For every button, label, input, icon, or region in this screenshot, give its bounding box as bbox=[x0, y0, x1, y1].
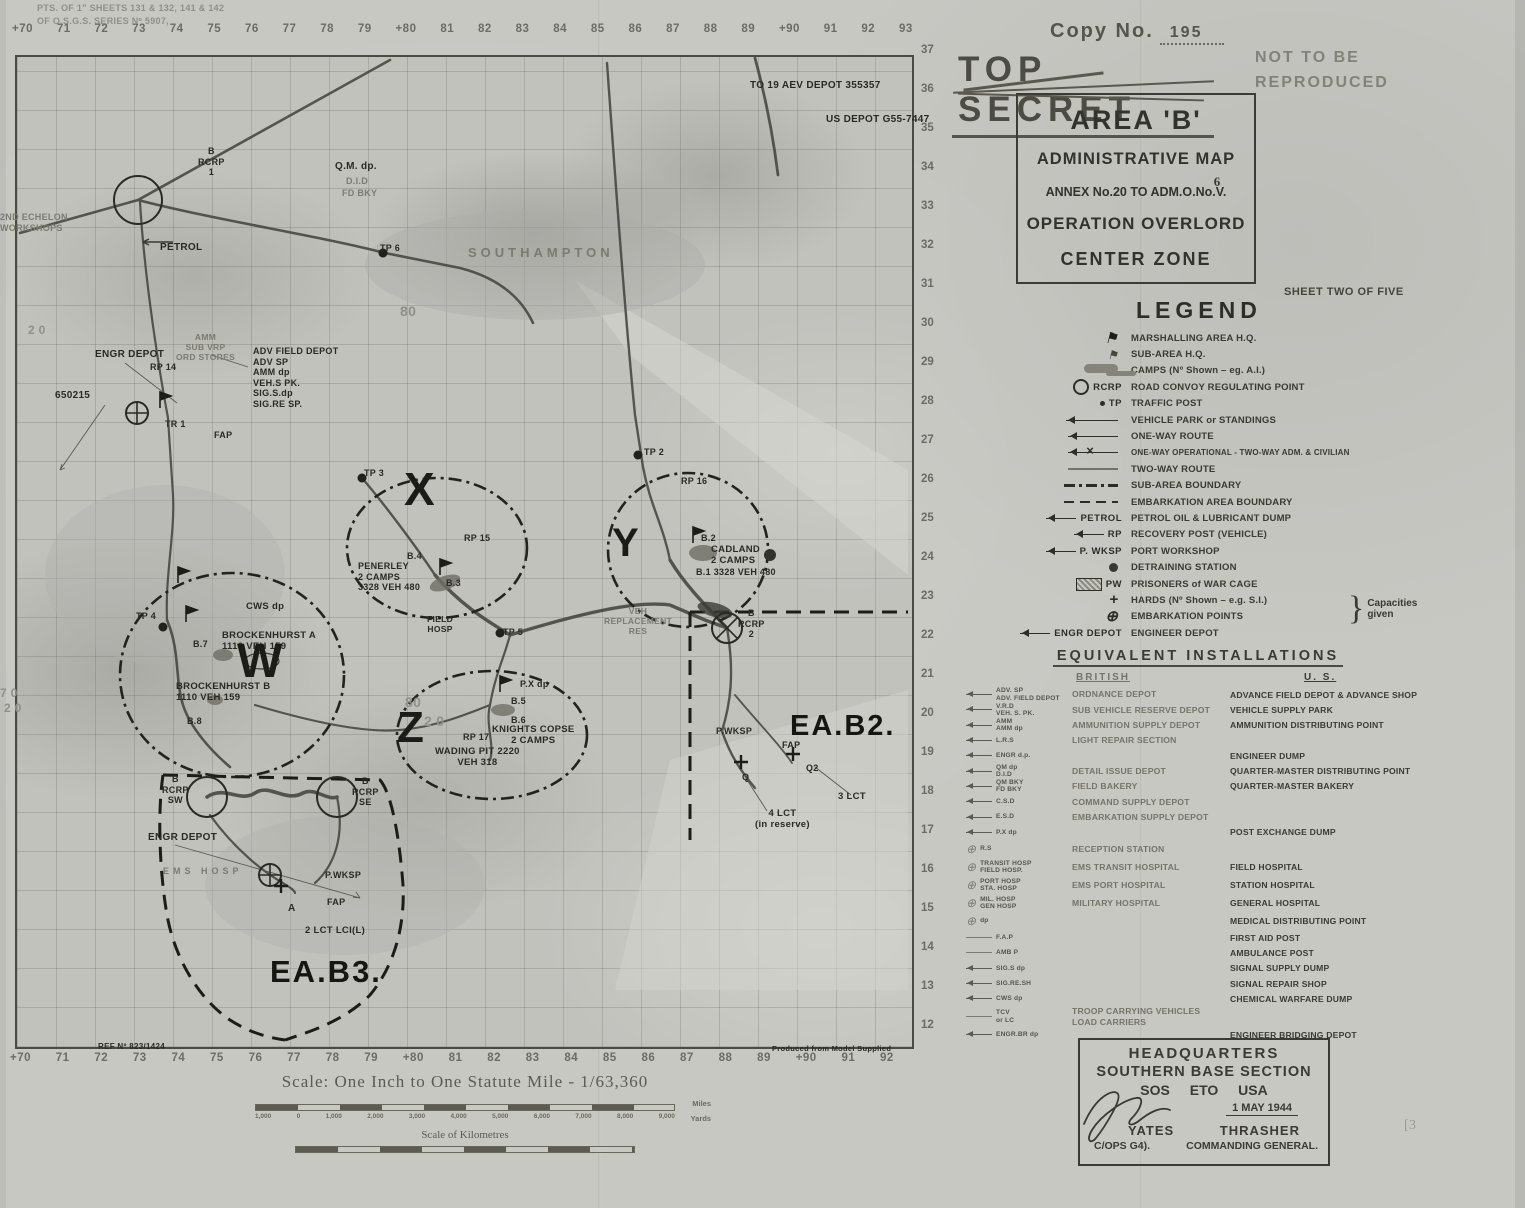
legend-symbol-icon bbox=[1100, 401, 1105, 406]
legend-item: ONE-WAY ROUTE bbox=[1018, 428, 1448, 444]
legend-symbol-icon bbox=[1107, 346, 1118, 364]
tp3-dot bbox=[358, 474, 367, 483]
equivalents-symbol: TRANSIT HOSP FIELD HOSP. bbox=[958, 858, 1072, 876]
legend-symbol-icon bbox=[1020, 633, 1050, 634]
miles-label: Miles bbox=[692, 1099, 711, 1108]
british-installation: LIGHT REPAIR SECTION bbox=[1072, 735, 1230, 745]
hq-left-name: YATES bbox=[1128, 1123, 1174, 1138]
grid-number: +80 bbox=[395, 23, 416, 35]
grid-number: 0 bbox=[297, 1113, 301, 1120]
equivalents-symbol: L.R.S bbox=[958, 737, 1072, 744]
grid-number: 23 bbox=[921, 590, 934, 602]
scale-bar bbox=[295, 1146, 635, 1153]
grid-number: 86 bbox=[641, 1052, 655, 1064]
copy-number-label: Copy No. bbox=[1050, 20, 1154, 42]
us-installation: ADVANCE FIELD DEPOT & ADVANCE SHOP bbox=[1230, 690, 1417, 700]
legend-symbol bbox=[1018, 436, 1131, 437]
equivalents-row: R.S RECEPTION STATION bbox=[958, 840, 1438, 858]
legend-symbol-icon bbox=[1084, 364, 1118, 373]
hq-right-role: COMMANDING GENERAL. bbox=[1186, 1140, 1318, 1152]
grid-number: 79 bbox=[358, 23, 372, 35]
equivalents-symbol-icon bbox=[966, 755, 992, 756]
grid-number: 92 bbox=[880, 1052, 894, 1064]
legend-item-label: PRISONERS of WAR CAGE bbox=[1131, 579, 1258, 590]
legend-symbol-abbr: RCRP bbox=[1093, 382, 1122, 393]
grid-number: 74 bbox=[170, 23, 184, 35]
british-installation: RECEPTION STATION bbox=[1072, 844, 1230, 854]
grid-number: 3,000 bbox=[409, 1113, 425, 1120]
grid-number: 82 bbox=[478, 23, 492, 35]
equivalents-symbol-abbr: SIG.RE.SH bbox=[996, 980, 1031, 987]
equivalents-row: PORT HOSP STA. HOSP EMS PORT HOSPITAL ST… bbox=[958, 876, 1438, 894]
british-installation: ORDNANCE DEPOT bbox=[1072, 689, 1230, 699]
equivalents-symbol-abbr: P.X dp bbox=[996, 829, 1017, 836]
legend-symbol bbox=[1018, 501, 1131, 504]
equivalents-symbol: P.X dp bbox=[958, 829, 1072, 836]
grid-number: 20 bbox=[921, 707, 934, 719]
camp-blobs bbox=[207, 545, 734, 716]
flag-icon bbox=[693, 527, 704, 543]
equivalents-symbol-icon bbox=[966, 937, 992, 938]
us-installation: FIELD HOSPITAL bbox=[1230, 862, 1303, 872]
equivalents-symbol-icon bbox=[966, 840, 976, 858]
equivalents-symbol: C.S.D bbox=[958, 798, 1072, 805]
equivalents-row: SIG.S dp SIGNAL SUPPLY DUMP bbox=[958, 961, 1438, 976]
equivalents-row: C.S.D COMMAND SUPPLY DEPOT bbox=[958, 794, 1438, 809]
british-installation: EMS PORT HOSPITAL bbox=[1072, 880, 1230, 890]
legend-item: SUB-AREA BOUNDARY bbox=[1018, 478, 1448, 494]
us-installation: MEDICAL DISTRIBUTING POINT bbox=[1230, 916, 1366, 926]
legend-symbol bbox=[1018, 484, 1131, 487]
legend-item-label: VEHICLE PARK or STANDINGS bbox=[1131, 415, 1276, 426]
equivalents-symbol-icon bbox=[966, 771, 992, 772]
hq-line-1: HEADQUARTERS bbox=[1080, 1045, 1328, 1062]
legend-symbol-abbr: ENGR DEPOT bbox=[1054, 628, 1122, 639]
equivalents-symbol: AMB P bbox=[958, 949, 1072, 956]
zone-title: CENTER ZONE bbox=[1022, 249, 1250, 270]
legend-symbol-icon bbox=[1046, 518, 1076, 519]
legend-item-label: HARDS (Nº Shown – e.g. S.I.) bbox=[1131, 595, 1267, 606]
grid-number: 89 bbox=[757, 1052, 771, 1064]
equivalents-symbol: V.R.D VEH. S. PK. bbox=[958, 703, 1072, 718]
us-installation: SIGNAL SUPPLY DUMP bbox=[1230, 963, 1329, 973]
flag-icon bbox=[500, 676, 511, 692]
legend-item: DETRAINING STATION bbox=[1018, 559, 1448, 575]
zone-y-boundary bbox=[608, 473, 768, 627]
legend-item-label: TWO-WAY ROUTE bbox=[1131, 464, 1215, 475]
legend-symbol-icon bbox=[1076, 578, 1102, 591]
legend-symbol bbox=[1018, 452, 1131, 453]
legend-item: ONE-WAY OPERATIONAL - TWO-WAY ADM. & CIV… bbox=[1018, 445, 1448, 461]
equivalents-row: ADV. SP ADV. FIELD DEPOT ORDNANCE DEPOT … bbox=[958, 687, 1438, 702]
equivalents-symbol-abbr: PORT HOSP STA. HOSP bbox=[980, 878, 1021, 893]
legend-symbol: PETROL bbox=[1018, 513, 1131, 524]
grid-number: 13 bbox=[921, 980, 934, 992]
legend-symbol-abbr: TP bbox=[1109, 398, 1122, 409]
equivalents-symbol-abbr: SIG.S dp bbox=[996, 965, 1025, 972]
british-installation: EMS TRANSIT HOSPITAL bbox=[1072, 862, 1230, 872]
equivalents-row: ENGR d.p. ENGINEER DUMP bbox=[958, 748, 1438, 763]
equivalents-symbol: E.S.D bbox=[958, 813, 1072, 820]
map-title-box: AREA 'B' ADMINISTRATIVE MAP ANNEX No.20 … bbox=[1016, 93, 1256, 284]
equivalents-symbol-abbr: CWS dp bbox=[996, 995, 1022, 1002]
grid-number: 34 bbox=[921, 161, 934, 173]
grid-numbers-right: 3736353433323130292827262524232221201918… bbox=[921, 44, 934, 1031]
legend-item-label: ONE-WAY ROUTE bbox=[1131, 431, 1214, 442]
legend-symbol bbox=[1018, 563, 1131, 572]
equivalents-rows: ADV. SP ADV. FIELD DEPOT ORDNANCE DEPOT … bbox=[958, 687, 1438, 1042]
grid-number: 17 bbox=[921, 824, 934, 836]
equivalents-symbol-icon bbox=[966, 983, 992, 984]
us-installation: ENGINEER DUMP bbox=[1230, 751, 1305, 761]
legend-symbol-icon bbox=[1105, 607, 1118, 626]
grid-number: 85 bbox=[603, 1052, 617, 1064]
grid-number: 31 bbox=[921, 278, 934, 290]
equivalents-symbol: ENGR d.p. bbox=[958, 752, 1072, 759]
grid-number: 93 bbox=[899, 23, 913, 35]
legend-symbol-abbr: PW bbox=[1106, 579, 1122, 590]
grid-number: 28 bbox=[921, 395, 934, 407]
grid-number: 71 bbox=[56, 1052, 70, 1064]
legend-item-label: PORT WORKSHOP bbox=[1131, 546, 1220, 557]
us-installation: SIGNAL REPAIR SHOP bbox=[1230, 979, 1327, 989]
grid-numbers-bottom: +70717273747576777879+808182838485868788… bbox=[10, 1052, 894, 1064]
hq-left-role: C/OPS G4). bbox=[1094, 1140, 1150, 1152]
sheet-source-note: PTS. OF 1" SHEETS 131 & 132, 141 & 142 bbox=[37, 3, 224, 14]
capacities-note: } Capacities given bbox=[1348, 590, 1429, 628]
grid-number: 73 bbox=[132, 23, 146, 35]
legend-item-label: SUB-AREA BOUNDARY bbox=[1131, 480, 1241, 491]
grid-number: 6,000 bbox=[534, 1113, 550, 1120]
equivalents-row: E.S.D EMBARKATION SUPPLY DEPOT bbox=[958, 809, 1438, 824]
equivalents-symbol-icon bbox=[966, 876, 976, 894]
legend-symbol bbox=[1018, 468, 1131, 470]
legend-title: LEGEND bbox=[1136, 297, 1448, 324]
grid-number: 75 bbox=[207, 23, 221, 35]
equivalents-symbol-icon bbox=[966, 786, 992, 787]
grid-number: 27 bbox=[921, 434, 934, 446]
scanned-map-sheet: +70717273747576777879+808182838485868788… bbox=[0, 0, 1525, 1208]
equivalents-row: AMB P AMBULANCE POST bbox=[958, 945, 1438, 960]
grid-number: 9,000 bbox=[659, 1113, 675, 1120]
equivalents-symbol-abbr: MIL. HOSP GEN HOSP bbox=[980, 896, 1016, 911]
equivalents-symbol-icon bbox=[966, 725, 992, 726]
equivalents-symbol-abbr: V.R.D VEH. S. PK. bbox=[996, 703, 1034, 718]
equivalents-symbol-abbr: TRANSIT HOSP FIELD HOSP. bbox=[980, 860, 1032, 875]
british-installation: TROOP CARRYING VEHICLES LOAD CARRIERS bbox=[1072, 1006, 1230, 1027]
grid-number: 4,000 bbox=[450, 1113, 466, 1120]
equivalents-symbol-abbr: R.S bbox=[980, 845, 992, 852]
legend-item-label: EMBARKATION AREA BOUNDARY bbox=[1131, 497, 1293, 508]
grid-number: 29 bbox=[921, 356, 934, 368]
equivalents-symbol-icon bbox=[966, 968, 992, 969]
grid-number: 78 bbox=[320, 23, 334, 35]
equivalents-row: dp MEDICAL DISTRIBUTING POINT bbox=[958, 912, 1438, 930]
grid-number: 7,000 bbox=[575, 1113, 591, 1120]
grid-number: 88 bbox=[719, 1052, 733, 1064]
detraining-station-dot bbox=[764, 549, 776, 561]
grid-number: 26 bbox=[921, 473, 934, 485]
legend-symbol bbox=[1018, 364, 1131, 377]
legend-item: PETROL PETROL OIL & LUBRICANT DUMP bbox=[1018, 510, 1448, 526]
equivalents-symbol: TCV or LC bbox=[958, 1009, 1072, 1024]
legend-symbol bbox=[1018, 346, 1131, 364]
us-installation: QUARTER-MASTER DISTRIBUTING POINT bbox=[1230, 766, 1410, 776]
legend-symbol-abbr: PETROL bbox=[1080, 513, 1122, 524]
scale-block: Scale: One Inch to One Statute Mile - 1/… bbox=[225, 1072, 705, 1153]
operation-title: OPERATION OVERLORD bbox=[1022, 214, 1250, 234]
grid-number: 92 bbox=[861, 23, 875, 35]
equivalents-symbol: ENGR.BR dp bbox=[958, 1031, 1072, 1038]
legend-symbol: RCRP bbox=[1018, 379, 1131, 395]
legend-item: P. WKSP PORT WORKSHOP bbox=[1018, 543, 1448, 559]
equivalents-header: BRITISH U. S. bbox=[958, 672, 1438, 683]
grid-number: 83 bbox=[526, 1052, 540, 1064]
us-installation: CHEMICAL WARFARE DUMP bbox=[1230, 994, 1352, 1004]
us-column-header: U. S. bbox=[1304, 672, 1336, 683]
equivalents-symbol: CWS dp bbox=[958, 995, 1072, 1002]
cws-oval bbox=[245, 653, 279, 669]
us-installation: GENERAL HOSPITAL bbox=[1230, 898, 1320, 908]
equivalents-symbol: SIG.S dp bbox=[958, 965, 1072, 972]
equivalents-row: P.X dp POST EXCHANGE DUMP bbox=[958, 825, 1438, 840]
zone-x-boundary bbox=[347, 478, 527, 618]
legend-item: MARSHALLING AREA H.Q. bbox=[1018, 330, 1448, 346]
equivalents-symbol-abbr: ENGR d.p. bbox=[996, 752, 1030, 759]
equivalents-title: EQUIVALENT INSTALLATIONS bbox=[1053, 648, 1343, 667]
grid-number: 77 bbox=[283, 23, 297, 35]
grid-number: 1,000 bbox=[326, 1113, 342, 1120]
legend-symbol-icon bbox=[1068, 468, 1118, 470]
legend-item: VEHICLE PARK or STANDINGS bbox=[1018, 412, 1448, 428]
equivalents-symbol-icon bbox=[966, 858, 976, 876]
equivalents-symbol-icon bbox=[966, 998, 992, 999]
equivalents-symbol-abbr: L.R.S bbox=[996, 737, 1014, 744]
embarkation-point-symbol bbox=[126, 402, 148, 424]
equivalents-symbol-icon bbox=[966, 1016, 992, 1017]
equivalents-row: TRANSIT HOSP FIELD HOSP. EMS TRANSIT HOS… bbox=[958, 858, 1438, 876]
grid-number: 5,000 bbox=[492, 1113, 508, 1120]
hq-date: 1 MAY 1944 bbox=[1226, 1102, 1298, 1116]
equivalents-row: SIG.RE.SH SIGNAL REPAIR SHOP bbox=[958, 976, 1438, 991]
annex-prefix: ANNEX No.20 TO ADM.O.No. bbox=[1046, 185, 1216, 199]
legend-item: TWO-WAY ROUTE bbox=[1018, 461, 1448, 477]
grid-number: 32 bbox=[921, 239, 934, 251]
legend-item: EMBARKATION AREA BOUNDARY bbox=[1018, 494, 1448, 510]
equivalents-symbol: F.A.P bbox=[958, 934, 1072, 941]
annex-line: ANNEX No.20 TO ADM.O.No.6V. bbox=[1022, 185, 1250, 199]
copy-number-line: Copy No.195 bbox=[1050, 20, 1224, 43]
legend-item-label: SUB-AREA H.Q. bbox=[1131, 349, 1206, 360]
grid-number: 75 bbox=[210, 1052, 224, 1064]
grid-number: 2,000 bbox=[367, 1113, 383, 1120]
us-installation: AMBULANCE POST bbox=[1230, 948, 1314, 958]
grid-number: 35 bbox=[921, 122, 934, 134]
legend: LEGEND MARSHALLING AREA H.Q. SUB-AREA H.… bbox=[1018, 297, 1448, 641]
legend-item: SUB-AREA H.Q. bbox=[1018, 346, 1448, 362]
grid-number: 74 bbox=[171, 1052, 185, 1064]
us-installation: POST EXCHANGE DUMP bbox=[1230, 827, 1336, 837]
legend-item-label: CAMPS (Nº Shown – eg. A.I.) bbox=[1131, 365, 1265, 376]
legend-symbol-icon bbox=[1068, 436, 1118, 437]
equivalents-symbol: QM dp D.I.D bbox=[958, 764, 1072, 779]
embarkation-point-symbol bbox=[259, 864, 281, 886]
scale-title: Scale: One Inch to One Statute Mile - 1/… bbox=[225, 1072, 705, 1092]
british-installation: COMMAND SUPPLY DEPOT bbox=[1072, 797, 1230, 807]
flag-icon bbox=[440, 559, 451, 575]
british-installation: EMBARKATION SUPPLY DEPOT bbox=[1072, 812, 1230, 822]
equivalents-symbol: SIG.RE.SH bbox=[958, 980, 1072, 987]
equivalents-symbol: PORT HOSP STA. HOSP bbox=[958, 876, 1072, 894]
handwritten-six: 6 bbox=[1214, 174, 1221, 190]
equivalent-installations: EQUIVALENT INSTALLATIONS BRITISH U. S. A… bbox=[958, 648, 1438, 1042]
legend-symbol: ENGR DEPOT bbox=[1018, 628, 1131, 639]
legend-symbol-abbr: P. WKSP bbox=[1080, 546, 1122, 557]
equivalents-symbol-abbr: dp bbox=[980, 917, 988, 924]
yards-ticks: 1,00001,0002,0003,0004,0005,0006,0007,00… bbox=[255, 1113, 675, 1120]
tp4-dot bbox=[159, 623, 168, 632]
legend-symbol-icon bbox=[1066, 420, 1118, 421]
legend-symbol: RP bbox=[1018, 529, 1131, 540]
map-overlay bbox=[15, 55, 910, 1045]
us-installation: VEHICLE SUPPLY PARK bbox=[1230, 705, 1333, 715]
grid-number: +80 bbox=[403, 1052, 424, 1064]
legend-symbol-abbr: RP bbox=[1108, 529, 1122, 540]
grid-number: 18 bbox=[921, 785, 934, 797]
equivalents-row: MIL. HOSP GEN HOSP MILITARY HOSPITAL GEN… bbox=[958, 894, 1438, 912]
grid-number: 83 bbox=[516, 23, 530, 35]
grid-number: 91 bbox=[824, 23, 838, 35]
us-installation: STATION HOSPITAL bbox=[1230, 880, 1315, 890]
equivalents-symbol-icon bbox=[966, 740, 992, 741]
legend-item-label: PETROL OIL & LUBRICANT DUMP bbox=[1131, 513, 1291, 524]
grid-number: 78 bbox=[326, 1052, 340, 1064]
hq-right-name: THRASHER bbox=[1220, 1123, 1300, 1138]
scale-bar-km bbox=[295, 1146, 635, 1153]
equivalents-row: QM BKY FD BKY FIELD BAKERY QUARTER-MASTE… bbox=[958, 779, 1438, 794]
equivalents-symbol-icon bbox=[966, 952, 992, 953]
legend-item-label: DETRAINING STATION bbox=[1131, 562, 1237, 573]
grid-number: 33 bbox=[921, 200, 934, 212]
grid-number: 21 bbox=[921, 668, 934, 680]
grid-number: 87 bbox=[680, 1052, 694, 1064]
grid-number: 25 bbox=[921, 512, 934, 524]
equivalents-symbol-abbr: QM dp D.I.D bbox=[996, 764, 1018, 779]
equivalents-symbol-abbr: F.A.P bbox=[996, 934, 1013, 941]
legend-item-label: ONE-WAY OPERATIONAL - TWO-WAY ADM. & CIV… bbox=[1131, 448, 1350, 457]
legend-symbol-icon bbox=[1073, 379, 1089, 395]
tp5-dot bbox=[496, 629, 505, 638]
yards-label: Yards bbox=[691, 1114, 711, 1123]
equivalents-symbol: AMM AMM dp bbox=[958, 718, 1072, 733]
grid-number: 24 bbox=[921, 551, 934, 563]
legend-symbol-icon bbox=[1064, 484, 1118, 487]
equivalents-symbol-icon bbox=[966, 832, 992, 833]
grid-number: 16 bbox=[921, 863, 934, 875]
equivalents-row: QM dp D.I.D DETAIL ISSUE DEPOT QUARTER-M… bbox=[958, 763, 1438, 778]
grid-number: 36 bbox=[921, 83, 934, 95]
equivalents-symbol: ADV. SP ADV. FIELD DEPOT bbox=[958, 687, 1072, 702]
tp2-dot bbox=[634, 451, 643, 460]
legend-item-label: RECOVERY POST (VEHICLE) bbox=[1131, 529, 1267, 540]
scale-bar-miles-yards: Miles Yards 1,00001,0002,0003,0004,0005,… bbox=[255, 1104, 675, 1120]
legend-item: RP RECOVERY POST (VEHICLE) bbox=[1018, 527, 1448, 543]
grid-number: 85 bbox=[591, 23, 605, 35]
equivalents-symbol-icon bbox=[966, 709, 992, 710]
grid-number: +70 bbox=[12, 23, 33, 35]
legend-symbol bbox=[1018, 607, 1131, 626]
grid-number: +90 bbox=[796, 1052, 817, 1064]
equivalents-symbol-icon bbox=[966, 912, 976, 930]
grid-number: 1,000 bbox=[255, 1113, 271, 1120]
pencil-annotation: [3 bbox=[1404, 1118, 1416, 1135]
british-installation: FIELD BAKERY bbox=[1072, 781, 1230, 791]
british-installation: SUB VEHICLE RESERVE DEPOT bbox=[1072, 705, 1230, 715]
not-to-be-reproduced-note: NOT TO BE REPRODUCED bbox=[1255, 46, 1389, 96]
equivalents-symbol-abbr: C.S.D bbox=[996, 798, 1015, 805]
hq-signature-box: HEADQUARTERS SOUTHERN BASE SECTION SOS E… bbox=[1078, 1038, 1330, 1166]
capacities-note-text: Capacities given bbox=[1367, 598, 1429, 620]
legend-symbol: PW bbox=[1018, 578, 1131, 591]
legend-symbol: P. WKSP bbox=[1018, 546, 1131, 557]
equivalents-symbol-icon bbox=[966, 801, 992, 802]
legend-symbol-icon bbox=[1064, 501, 1118, 504]
equivalents-symbol: dp bbox=[958, 912, 1072, 930]
us-installation: FIRST AID POST bbox=[1230, 933, 1300, 943]
grid-number: 72 bbox=[94, 1052, 108, 1064]
km-scale-title: Scale of Kilometres bbox=[225, 1129, 705, 1141]
grid-number: 12 bbox=[921, 1019, 934, 1031]
equivalents-symbol-abbr: AMM AMM dp bbox=[996, 718, 1023, 733]
hq-names: YATES THRASHER bbox=[1080, 1123, 1328, 1138]
equivalents-row: F.A.P FIRST AID POST bbox=[958, 930, 1438, 945]
grid-number: 87 bbox=[666, 23, 680, 35]
grid-number: 84 bbox=[553, 23, 567, 35]
equivalents-symbol-abbr: ENGR.BR dp bbox=[996, 1031, 1038, 1038]
equivalents-symbol-abbr: TCV or LC bbox=[996, 1009, 1014, 1024]
equivalents-row: V.R.D VEH. S. PK. SUB VEHICLE RESERVE DE… bbox=[958, 702, 1438, 717]
equivalents-row: AMM AMM dp AMMUNITION SUPPLY DEPOT AMMUN… bbox=[958, 718, 1438, 733]
equivalents-symbol-abbr: QM BKY FD BKY bbox=[996, 779, 1024, 794]
scale-bar bbox=[255, 1104, 675, 1111]
legend-item: CAMPS (Nº Shown – eg. A.I.) bbox=[1018, 363, 1448, 379]
grid-number: 22 bbox=[921, 629, 934, 641]
legend-symbol: TP bbox=[1018, 398, 1131, 409]
legend-item-label: MARSHALLING AREA H.Q. bbox=[1131, 333, 1256, 344]
map-subtitle: ADMINISTRATIVE MAP bbox=[1022, 150, 1250, 169]
equivalents-symbol-abbr: AMB P bbox=[996, 949, 1018, 956]
grid-number: 84 bbox=[564, 1052, 578, 1064]
grid-number: 14 bbox=[921, 941, 934, 953]
grid-number: +90 bbox=[779, 23, 800, 35]
british-installation: MILITARY HOSPITAL bbox=[1072, 898, 1230, 908]
equivalents-symbol-abbr: ADV. SP ADV. FIELD DEPOT bbox=[996, 687, 1060, 702]
legend-item: TP TRAFFIC POST bbox=[1018, 396, 1448, 412]
legend-item-label: EMBARKATION POINTS bbox=[1131, 611, 1243, 622]
tp6-dot bbox=[379, 249, 388, 258]
legend-item-label: ENGINEER DEPOT bbox=[1131, 628, 1219, 639]
equivalents-row: TCV or LC TROOP CARRYING VEHICLES LOAD C… bbox=[958, 1006, 1438, 1027]
equivalents-symbol-icon bbox=[966, 894, 976, 912]
equivalents-row: L.R.S LIGHT REPAIR SECTION bbox=[958, 733, 1438, 748]
legend-item-label: ROAD CONVOY REGULATING POINT bbox=[1131, 382, 1305, 393]
grid-number: 81 bbox=[440, 23, 454, 35]
grid-number: 76 bbox=[249, 1052, 263, 1064]
us-installation: QUARTER-MASTER BAKERY bbox=[1230, 781, 1354, 791]
equivalents-symbol: MIL. HOSP GEN HOSP bbox=[958, 894, 1072, 912]
equivalents-symbol-icon bbox=[966, 1034, 992, 1035]
equivalents-row: CWS dp CHEMICAL WARFARE DUMP bbox=[958, 991, 1438, 1006]
